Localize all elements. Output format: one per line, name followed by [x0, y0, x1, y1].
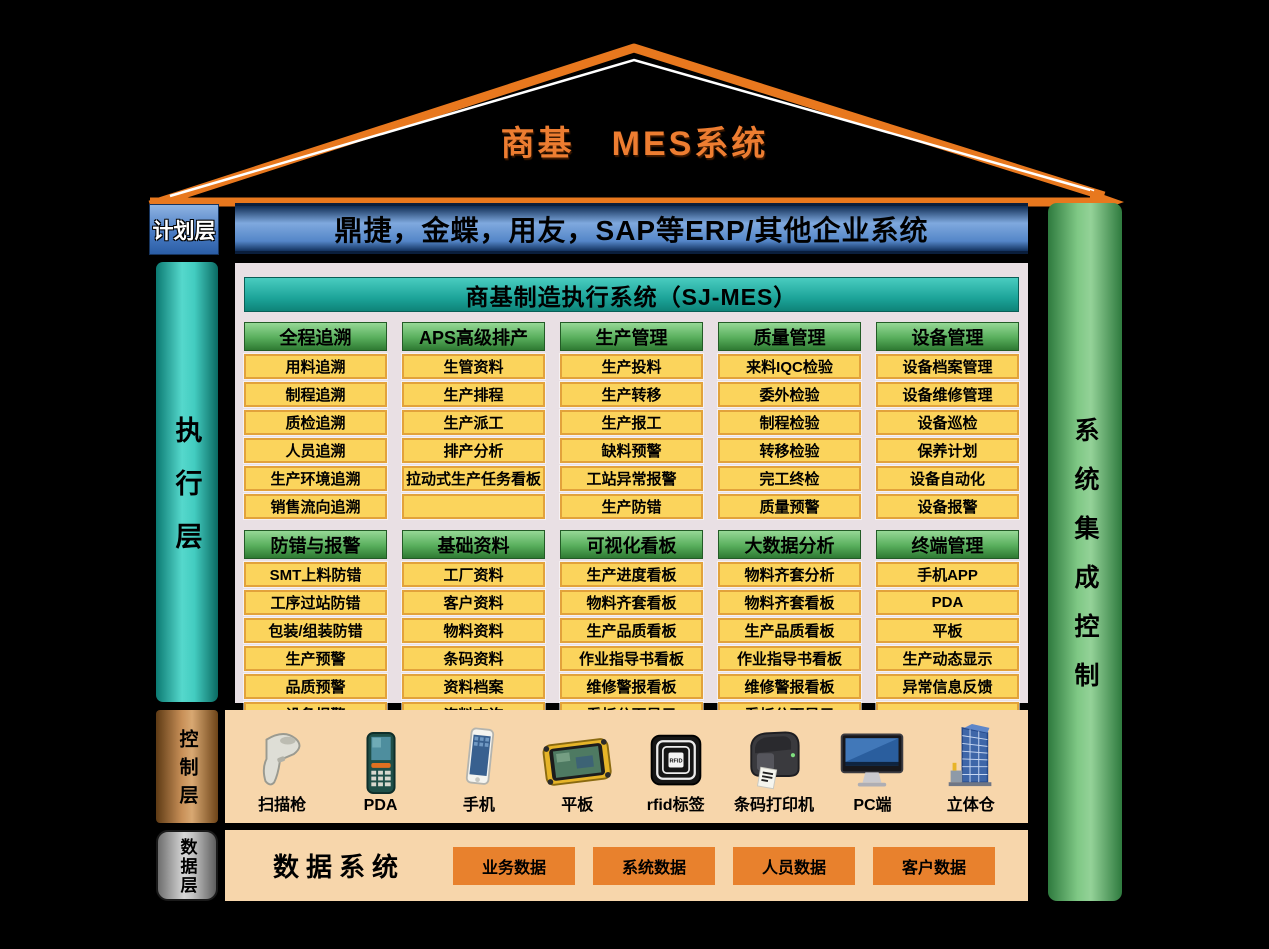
module-item: 作业指导书看板 [718, 646, 861, 671]
module-item [402, 494, 545, 519]
module-item: 生产派工 [402, 410, 545, 435]
device-label: rfid标签 [647, 791, 705, 815]
smartphone-icon [450, 724, 508, 790]
module-item: 生产预警 [244, 646, 387, 671]
rfid-tag-icon: RFID [646, 730, 706, 790]
module-base-data: 基础资料 工厂资料 客户资料 物料资料 条码资料 资料档案 资料查询 [402, 530, 545, 727]
module-aps: APS高级排产 生管资料 生产排程 生产派工 排产分析 拉动式生产任务看板 [402, 322, 545, 519]
module-title: 质量管理 [718, 322, 861, 351]
warehouse-icon [939, 724, 1003, 790]
device-printer: 条码打印机 [726, 726, 822, 815]
sjmes-header: 商基制造执行系统（SJ-MES） [244, 277, 1019, 312]
module-item: 来料IQC检验 [718, 354, 861, 379]
module-item: 维修警报看板 [560, 674, 703, 699]
module-row-2: 防错与报警 SMT上料防错 工序过站防错 包装/组装防错 生产预警 品质预警 设… [244, 530, 1019, 727]
module-item: 生产品质看板 [718, 618, 861, 643]
module-item: 维修警报看板 [718, 674, 861, 699]
layer-label-execution: 执行层 [156, 262, 218, 702]
device-label: 条码打印机 [734, 791, 814, 815]
layer-label-control: 控制层 [156, 710, 218, 823]
module-item: 包装/组装防错 [244, 618, 387, 643]
device-label: PDA [364, 797, 398, 815]
module-item: PDA [876, 590, 1019, 615]
data-box-system: 系统数据 [593, 847, 715, 885]
module-item: 设备巡检 [876, 410, 1019, 435]
layer-label-data-text: 数据层 [175, 836, 200, 895]
module-item: 设备档案管理 [876, 354, 1019, 379]
module-item: 生产品质看板 [560, 618, 703, 643]
layer-label-execution-text: 执行层 [168, 390, 207, 575]
module-item: 生管资料 [402, 354, 545, 379]
module-item: 设备报警 [876, 494, 1019, 519]
module-item: 拉动式生产任务看板 [402, 466, 545, 491]
layer-label-plan: 计划层 [149, 204, 219, 255]
module-bigdata: 大数据分析 物料齐套分析 物料齐套看板 生产品质看板 作业指导书看板 维修警报看… [718, 530, 861, 727]
module-item: 生产排程 [402, 382, 545, 407]
control-devices-bar: 扫描枪 PDA [225, 710, 1028, 823]
module-title: 可视化看板 [560, 530, 703, 559]
data-box-customer: 客户数据 [873, 847, 995, 885]
module-item: 质检追溯 [244, 410, 387, 435]
barcode-scanner-icon [251, 728, 313, 790]
module-item: 委外检验 [718, 382, 861, 407]
module-item: 异常信息反馈 [876, 674, 1019, 699]
device-label: PC端 [853, 791, 891, 815]
module-item: 生产防错 [560, 494, 703, 519]
module-item: 品质预警 [244, 674, 387, 699]
module-title: 终端管理 [876, 530, 1019, 559]
layer-label-control-text: 控制层 [174, 720, 201, 813]
system-integration-label: 系统集成控制 [1067, 393, 1103, 711]
pc-monitor-icon [836, 730, 908, 790]
module-title: 防错与报警 [244, 530, 387, 559]
erp-systems-bar: 鼎捷，金蝶，用友，SAP等ERP/其他企业系统 [235, 203, 1028, 254]
module-error-proof: 防错与报警 SMT上料防错 工序过站防错 包装/组装防错 生产预警 品质预警 设… [244, 530, 387, 727]
module-title: 基础资料 [402, 530, 545, 559]
barcode-printer-icon [738, 726, 810, 790]
module-item: 条码资料 [402, 646, 545, 671]
module-item: 保养计划 [876, 438, 1019, 463]
svg-text:RFID: RFID [669, 758, 682, 764]
device-tablet: 平板 [529, 732, 625, 815]
module-item: 生产投料 [560, 354, 703, 379]
module-item: 设备维修管理 [876, 382, 1019, 407]
device-pda: PDA [333, 730, 429, 815]
module-quality: 质量管理 来料IQC检验 委外检验 制程检验 转移检验 完工终检 质量预警 [718, 322, 861, 519]
module-item: 工厂资料 [402, 562, 545, 587]
module-item: 物料资料 [402, 618, 545, 643]
module-item: 制程检验 [718, 410, 861, 435]
data-layer-bar: 数据系统 业务数据 系统数据 人员数据 客户数据 [225, 830, 1028, 901]
module-item: 人员追溯 [244, 438, 387, 463]
device-label: 手机 [463, 791, 495, 815]
device-pc: PC端 [824, 730, 920, 815]
module-row-1: 全程追溯 用料追溯 制程追溯 质检追溯 人员追溯 生产环境追溯 销售流向追溯 A… [244, 322, 1019, 519]
module-item: SMT上料防错 [244, 562, 387, 587]
layer-label-data: 数据层 [156, 830, 218, 901]
module-item: 生产动态显示 [876, 646, 1019, 671]
module-item: 转移检验 [718, 438, 861, 463]
module-item: 完工终检 [718, 466, 861, 491]
module-item: 用料追溯 [244, 354, 387, 379]
device-warehouse: 立体仓 [923, 724, 1019, 815]
system-integration-bar: 系统集成控制 [1048, 203, 1122, 901]
device-label: 平板 [561, 791, 593, 815]
module-trace: 全程追溯 用料追溯 制程追溯 质检追溯 人员追溯 生产环境追溯 销售流向追溯 [244, 322, 387, 519]
module-item: 手机APP [876, 562, 1019, 587]
module-item: 生产报工 [560, 410, 703, 435]
module-title: 设备管理 [876, 322, 1019, 351]
module-item: 生产环境追溯 [244, 466, 387, 491]
mes-architecture-diagram: 商基 MES系统 计划层 执行层 控制层 数据层 鼎捷，金蝶，用友，SAP等ER… [0, 0, 1269, 949]
module-terminal: 终端管理 手机APP PDA 平板 生产动态显示 异常信息反馈 [876, 530, 1019, 727]
module-item: 工站异常报警 [560, 466, 703, 491]
module-item: 物料齐套分析 [718, 562, 861, 587]
module-item: 设备自动化 [876, 466, 1019, 491]
module-item: 物料齐套看板 [560, 590, 703, 615]
module-title: APS高级排产 [402, 322, 545, 351]
data-system-title: 数据系统 [225, 847, 453, 884]
module-item: 排产分析 [402, 438, 545, 463]
module-item: 生产进度看板 [560, 562, 703, 587]
device-label: 立体仓 [947, 791, 995, 815]
module-item: 作业指导书看板 [560, 646, 703, 671]
module-item: 客户资料 [402, 590, 545, 615]
device-rfid: RFID rfid标签 [628, 730, 724, 815]
device-label: 扫描枪 [258, 791, 306, 815]
module-item: 平板 [876, 618, 1019, 643]
module-item: 生产转移 [560, 382, 703, 407]
roof-outline [0, 0, 1269, 218]
device-scanner: 扫描枪 [234, 728, 330, 815]
data-box-business: 业务数据 [453, 847, 575, 885]
module-item: 缺料预警 [560, 438, 703, 463]
module-kanban: 可视化看板 生产进度看板 物料齐套看板 生产品质看板 作业指导书看板 维修警报看… [560, 530, 703, 727]
rugged-tablet-icon [540, 732, 614, 790]
module-item: 制程追溯 [244, 382, 387, 407]
data-box-personnel: 人员数据 [733, 847, 855, 885]
module-item: 资料档案 [402, 674, 545, 699]
module-title: 全程追溯 [244, 322, 387, 351]
module-title: 大数据分析 [718, 530, 861, 559]
diagram-title: 商基 MES系统 [0, 116, 1269, 165]
module-item: 销售流向追溯 [244, 494, 387, 519]
module-equipment: 设备管理 设备档案管理 设备维修管理 设备巡检 保养计划 设备自动化 设备报警 [876, 322, 1019, 519]
device-phone: 手机 [431, 724, 527, 815]
module-item: 质量预警 [718, 494, 861, 519]
execution-panel: 商基制造执行系统（SJ-MES） 全程追溯 用料追溯 制程追溯 质检追溯 人员追… [235, 263, 1028, 703]
pda-icon [350, 730, 412, 796]
module-item: 工序过站防错 [244, 590, 387, 615]
module-production: 生产管理 生产投料 生产转移 生产报工 缺料预警 工站异常报警 生产防错 [560, 322, 703, 519]
module-item: 物料齐套看板 [718, 590, 861, 615]
module-title: 生产管理 [560, 322, 703, 351]
